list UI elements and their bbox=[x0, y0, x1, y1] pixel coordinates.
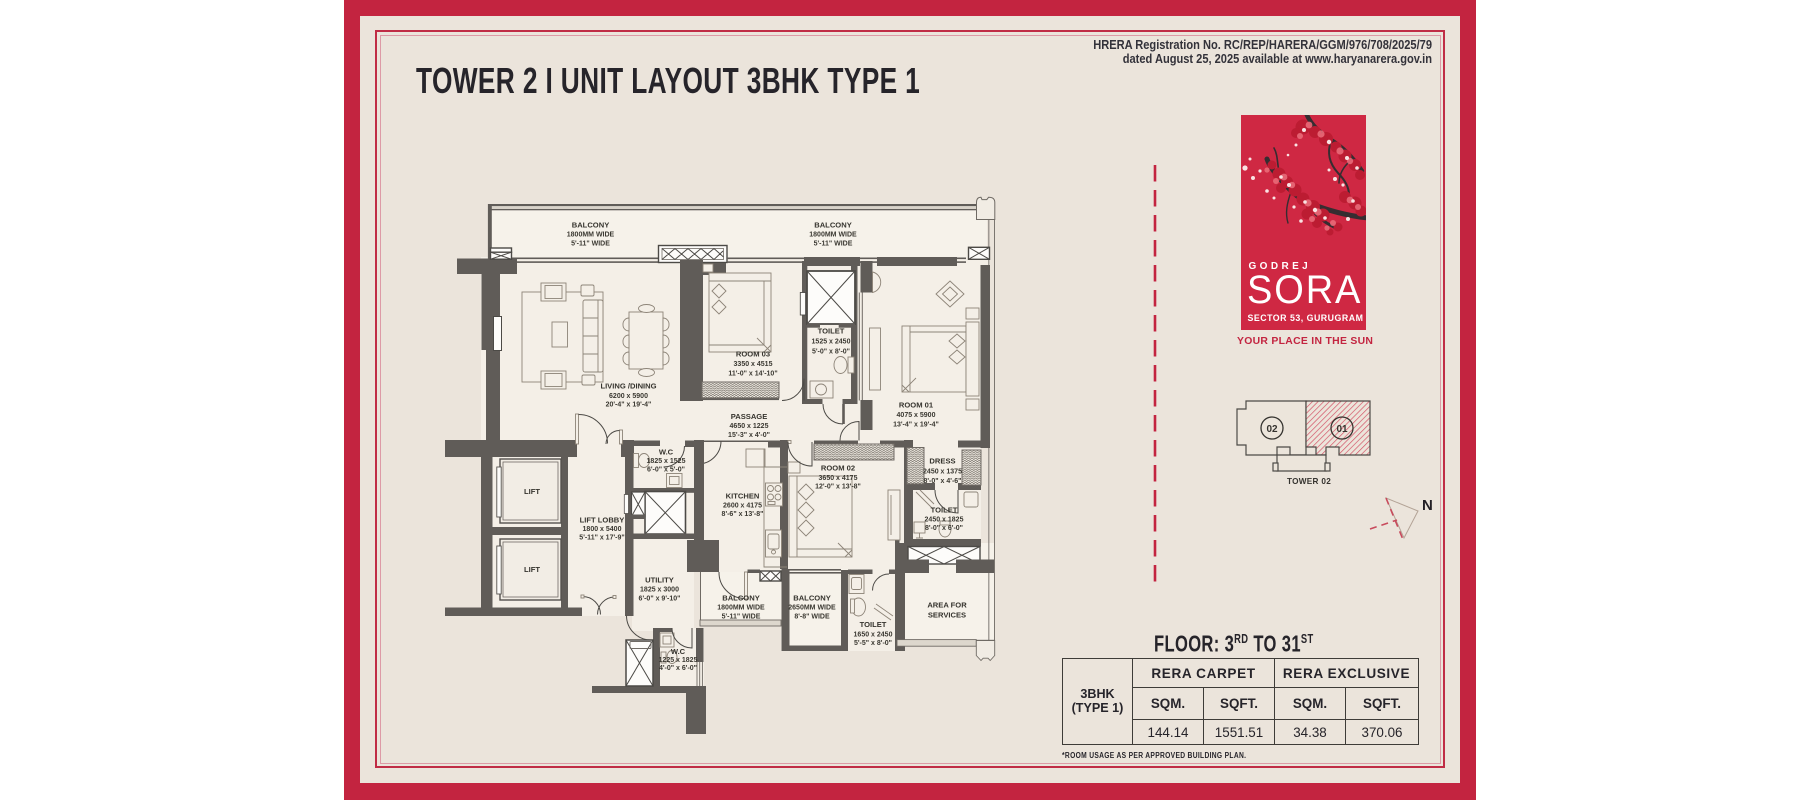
svg-text:4075 x 5900: 4075 x 5900 bbox=[897, 412, 936, 419]
svg-text:1225 x 1825: 1225 x 1825 bbox=[659, 657, 698, 664]
svg-text:8'-0" x 4'-6": 8'-0" x 4'-6" bbox=[924, 478, 962, 485]
svg-text:KITCHEN: KITCHEN bbox=[726, 492, 760, 501]
svg-text:8'-8" WIDE: 8'-8" WIDE bbox=[794, 614, 830, 621]
svg-text:ROOM 02: ROOM 02 bbox=[821, 463, 855, 472]
svg-text:BALCONY: BALCONY bbox=[572, 220, 610, 229]
svg-text:BALCONY: BALCONY bbox=[814, 220, 852, 229]
svg-text:15'-3" x 4'-0": 15'-3" x 4'-0" bbox=[728, 432, 770, 439]
svg-text:N: N bbox=[1422, 497, 1433, 514]
svg-text:1800MM WIDE: 1800MM WIDE bbox=[809, 232, 857, 239]
svg-text:4650 x 1225: 4650 x 1225 bbox=[730, 423, 769, 430]
svg-text:1800MM WIDE: 1800MM WIDE bbox=[717, 605, 765, 612]
svg-text:1525 x 2450: 1525 x 2450 bbox=[812, 338, 851, 345]
svg-text:6'-0" x 5'-0": 6'-0" x 5'-0" bbox=[647, 467, 685, 474]
svg-text:13'-4" x 19'-4": 13'-4" x 19'-4" bbox=[893, 421, 939, 428]
svg-text:5'-0" x 8'-0": 5'-0" x 8'-0" bbox=[812, 349, 850, 356]
svg-text:TOILET: TOILET bbox=[860, 620, 887, 629]
svg-text:SERVICES: SERVICES bbox=[928, 611, 966, 620]
svg-text:W.C: W.C bbox=[671, 647, 686, 656]
svg-text:20'-4" x 19'-4": 20'-4" x 19'-4" bbox=[606, 402, 652, 409]
svg-text:5'-11" WIDE: 5'-11" WIDE bbox=[722, 614, 761, 621]
svg-text:01: 01 bbox=[1336, 424, 1348, 435]
svg-text:6200 x 5900: 6200 x 5900 bbox=[609, 393, 648, 400]
svg-text:LIVING /DINING: LIVING /DINING bbox=[600, 382, 656, 391]
svg-text:12'-0" x 13'-8": 12'-0" x 13'-8" bbox=[815, 483, 861, 490]
svg-text:ROOM 03: ROOM 03 bbox=[736, 350, 770, 359]
svg-text:5'-11" WIDE: 5'-11" WIDE bbox=[571, 240, 610, 247]
svg-text:3350 x 4515: 3350 x 4515 bbox=[734, 361, 773, 368]
svg-text:4'-0" x 6'-0": 4'-0" x 6'-0" bbox=[659, 665, 697, 672]
svg-text:2450 x 1375: 2450 x 1375 bbox=[923, 468, 962, 475]
svg-text:AREA FOR: AREA FOR bbox=[927, 601, 967, 610]
svg-text:3650 x 4175: 3650 x 4175 bbox=[819, 475, 858, 482]
svg-text:1800 x 5400: 1800 x 5400 bbox=[583, 526, 622, 533]
svg-text:02: 02 bbox=[1266, 424, 1278, 435]
svg-text:1825 x 3000: 1825 x 3000 bbox=[640, 587, 679, 594]
svg-text:11'-0" x 14'-10": 11'-0" x 14'-10" bbox=[728, 370, 777, 377]
svg-text:1800MM WIDE: 1800MM WIDE bbox=[567, 232, 615, 239]
svg-text:LIFT LOBBY: LIFT LOBBY bbox=[580, 516, 625, 525]
svg-text:5'-11" WIDE: 5'-11" WIDE bbox=[814, 240, 853, 247]
svg-text:2600 x 4175: 2600 x 4175 bbox=[723, 503, 762, 510]
svg-text:TOILET: TOILET bbox=[931, 506, 958, 515]
svg-text:1825 x 1525: 1825 x 1525 bbox=[647, 458, 686, 465]
svg-text:2450 x 1825: 2450 x 1825 bbox=[925, 517, 964, 524]
svg-text:2650MM WIDE: 2650MM WIDE bbox=[788, 605, 836, 612]
svg-text:LIFT: LIFT bbox=[524, 487, 540, 496]
svg-text:TOILET: TOILET bbox=[818, 327, 845, 336]
svg-text:BALCONY: BALCONY bbox=[722, 593, 760, 602]
svg-text:PASSAGE: PASSAGE bbox=[731, 412, 768, 421]
svg-text:8'-0" x 6'-0": 8'-0" x 6'-0" bbox=[925, 525, 963, 532]
svg-text:W.C: W.C bbox=[659, 448, 674, 457]
svg-text:6'-0" x 9'-10": 6'-0" x 9'-10" bbox=[639, 596, 681, 603]
svg-text:1650 x 2450: 1650 x 2450 bbox=[854, 632, 893, 639]
svg-text:BALCONY: BALCONY bbox=[793, 594, 831, 603]
svg-text:DRESS: DRESS bbox=[929, 456, 955, 465]
svg-text:UTILITY: UTILITY bbox=[645, 576, 674, 585]
svg-text:TOWER 02: TOWER 02 bbox=[1287, 477, 1331, 486]
svg-text:8'-6" x 13'-8": 8'-6" x 13'-8" bbox=[722, 511, 764, 518]
svg-text:5'-5" x 8'-0": 5'-5" x 8'-0" bbox=[854, 640, 892, 647]
svg-text:LIFT: LIFT bbox=[524, 565, 540, 574]
svg-text:ROOM 01: ROOM 01 bbox=[899, 401, 934, 410]
svg-text:5'-11" x 17'-9": 5'-11" x 17'-9" bbox=[579, 535, 624, 542]
